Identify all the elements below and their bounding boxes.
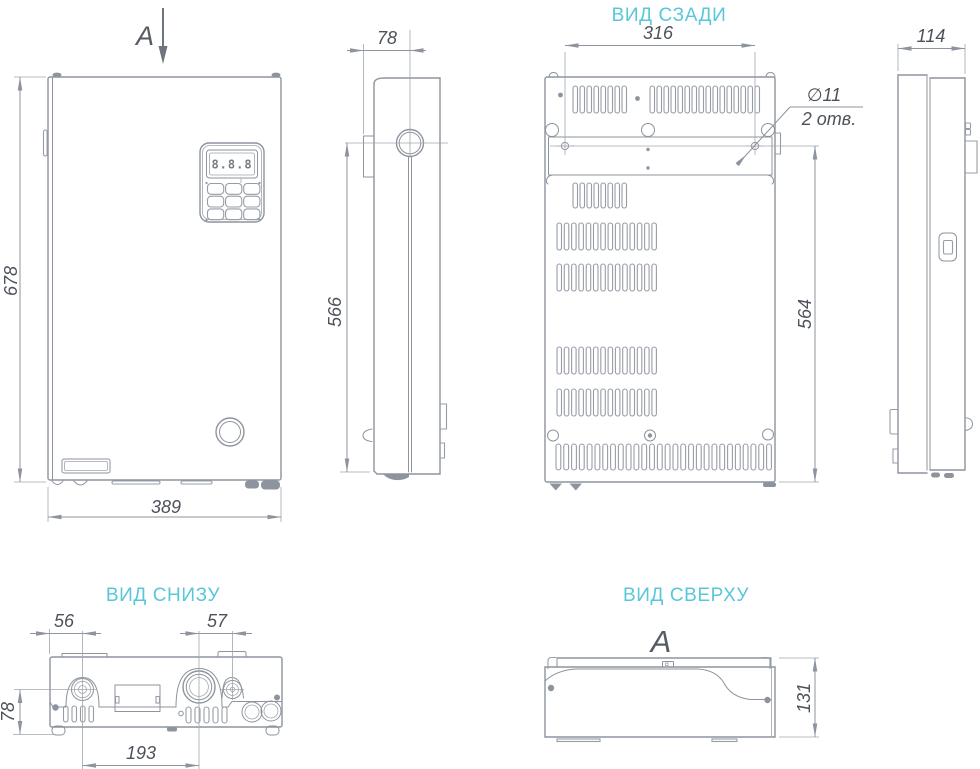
vent-slot (608, 223, 613, 250)
panel-button[interactable] (226, 184, 242, 195)
dim-side-pipe-to-bottom: 566 (325, 143, 370, 472)
vent-slot (657, 444, 662, 470)
vent-slot (587, 444, 592, 470)
vent-slot (564, 264, 569, 291)
button-grid[interactable] (208, 184, 260, 220)
vent-slot (630, 223, 635, 250)
side-clip (890, 410, 898, 435)
vent-slot (594, 183, 599, 208)
vent-slot (603, 444, 608, 470)
vent-slot (564, 347, 569, 374)
vent-slot (72, 706, 77, 722)
dim-front-height: 678 (1, 77, 46, 482)
vent-slot (652, 264, 657, 291)
dim-pipe-depth-label: 78 (0, 702, 18, 722)
bottom-view: ВИД СНИЗУ (0, 585, 282, 769)
top-tab-left (53, 73, 62, 78)
vent-slot (623, 223, 628, 250)
vent-slot (699, 86, 704, 113)
vent-slot (579, 444, 584, 470)
vent-slot (728, 444, 733, 470)
rear-bracket-side (440, 404, 447, 429)
vent-slot (580, 183, 585, 208)
vent-slot (611, 444, 616, 470)
vent-slot (204, 707, 209, 723)
vent-slot (734, 86, 739, 113)
panel-button[interactable] (226, 196, 242, 207)
vent-slot (704, 444, 709, 470)
vent-slot (727, 86, 732, 113)
panel-button[interactable] (208, 184, 224, 195)
bottom-hole (274, 695, 280, 701)
rear-view: ВИД СЗАДИ ∅11 (545, 5, 863, 491)
lcd-display-value: 8.8.8 (211, 158, 252, 172)
vent-slot (564, 389, 569, 416)
panel-button[interactable] (226, 209, 242, 220)
vent-slot (720, 86, 725, 113)
vent-slot (579, 223, 584, 250)
vent-slot (557, 223, 562, 250)
side-clip-right (965, 418, 973, 431)
dim-valve-offset-label: 57 (207, 611, 228, 631)
rear-vents-top-right (650, 86, 760, 113)
vent-slot (652, 389, 657, 416)
vent-slot (720, 444, 725, 470)
dim-side-pipe-offset: 78 (347, 28, 426, 134)
vent-slot (637, 223, 642, 250)
vent-slot (573, 86, 578, 113)
vent-slot (608, 347, 613, 374)
bottom-top-tab (218, 652, 246, 658)
vent-slot (557, 264, 562, 291)
vent-slot (557, 389, 562, 416)
vent-slot (573, 183, 578, 208)
vent-slot (652, 223, 657, 250)
vent-slot (712, 444, 717, 470)
vent-slot (645, 389, 650, 416)
vent-slot (564, 223, 569, 250)
vent-slot (645, 264, 650, 291)
vent-slot (556, 444, 561, 470)
vent-slot (622, 183, 627, 208)
vent-slot (608, 86, 613, 113)
vent-slot (685, 86, 690, 113)
vent-slot (645, 347, 650, 374)
vent-slot (89, 706, 94, 722)
side-foot (931, 473, 940, 478)
vent-slot (594, 389, 599, 416)
vent-slot (630, 347, 635, 374)
vent-slot (572, 444, 577, 470)
vent-slot (572, 347, 577, 374)
door-latch-profile (364, 136, 375, 177)
bottom-view-title: ВИД СНИЗУ (106, 585, 221, 606)
vent-slot (586, 223, 591, 250)
bottom-foot-center (167, 727, 177, 732)
top-view: ВИД СВЕРХУ A 131 (545, 585, 819, 742)
bracket-profile-curve (545, 669, 771, 700)
panel-button[interactable] (244, 196, 260, 207)
vent-slot (692, 86, 697, 113)
vent-slot (615, 86, 620, 113)
section-arrow-label: A (134, 21, 154, 51)
dim-top-depth-label: 131 (794, 683, 814, 713)
vent-slot (767, 444, 772, 470)
rear-panel-outline (545, 77, 775, 482)
vent-slot (626, 444, 631, 470)
vent-slot (601, 264, 606, 291)
door-hinge (44, 130, 48, 156)
vent-slot (735, 444, 740, 470)
vent-slot (713, 86, 718, 113)
vent-slot (579, 347, 584, 374)
vent-slot (615, 347, 620, 374)
vent-slot (572, 389, 577, 416)
section-arrow: A (134, 8, 168, 64)
screw (635, 96, 640, 101)
dim-front-width-label: 389 (151, 497, 181, 517)
dim-top-depth: 131 (779, 658, 819, 737)
vent-slot (186, 707, 191, 723)
vent-slot (759, 444, 764, 470)
vent-slot (678, 86, 683, 113)
vent-slot (671, 86, 676, 113)
keyhole-left (546, 124, 559, 137)
vent-slot (637, 347, 642, 374)
vent-slot (615, 264, 620, 291)
front-feet (52, 481, 280, 490)
bracket-tab (966, 123, 971, 129)
vent-slot (657, 86, 662, 113)
vent-slot (608, 183, 613, 208)
vent-slot (618, 444, 623, 470)
vent-slot (630, 264, 635, 291)
dim-front-width: 389 (48, 487, 281, 522)
panel-button[interactable] (208, 196, 224, 207)
vent-slot (594, 223, 599, 250)
top-view-section-label: A (649, 624, 672, 659)
vent-slot (64, 706, 69, 722)
bottom-clip (363, 429, 372, 442)
panel-button[interactable] (244, 184, 260, 195)
dim-side-pipe-to-bottom-label: 566 (325, 296, 345, 327)
dim-front-height-label: 678 (1, 266, 21, 296)
vent-slot (580, 86, 585, 113)
bottom-vents-right (186, 707, 227, 723)
vent-slot (637, 389, 642, 416)
top-view-title: ВИД СВЕРХУ (623, 585, 749, 606)
side-switch[interactable] (939, 233, 957, 261)
vent-slot (579, 264, 584, 291)
dim-depth-label: 114 (917, 26, 946, 46)
vent-slot (751, 444, 756, 470)
dim-mount-holes: 316 (565, 23, 755, 137)
panel-button[interactable] (208, 209, 224, 220)
vent-slot (696, 444, 701, 470)
hole-diameter-label: ∅11 (807, 85, 841, 105)
dim-bracket-to-bottom: 564 (770, 146, 819, 482)
dim-side-pipe-offset-label: 78 (377, 28, 397, 48)
dim-mount-holes-label: 316 (643, 23, 674, 43)
vent-slot (608, 264, 613, 291)
rear-hole-right (763, 429, 774, 440)
side-foot (383, 474, 409, 480)
vent-slot (586, 347, 591, 374)
dim-bracket-to-bottom-label: 564 (795, 299, 815, 329)
bottom-hole (52, 704, 58, 710)
vent-slot (634, 444, 639, 470)
vent-slot (615, 183, 620, 208)
rear-side-tab (775, 133, 781, 154)
vent-slot (681, 444, 686, 470)
rear-vents-top-left (573, 86, 627, 113)
bottom-cutout (115, 685, 160, 712)
vent-slot (557, 347, 562, 374)
bottom-vents-left (64, 706, 94, 722)
vent-slot (564, 444, 569, 470)
vent-slot (650, 86, 655, 113)
vent-slot (579, 389, 584, 416)
vent-slot (601, 183, 606, 208)
dim-valve-offset: 57 (180, 611, 252, 634)
dim-left-pipe-offset-label: 56 (54, 611, 75, 631)
hole-count-label: 2 отв. (801, 109, 856, 129)
right-side-view: 114 (890, 26, 977, 478)
vent-slot (650, 444, 655, 470)
dim-pipe-spacing-label: 193 (126, 743, 156, 763)
vent-slot (587, 183, 592, 208)
vent-slot (706, 86, 711, 113)
vent-slot (673, 444, 678, 470)
vent-slot (741, 86, 746, 113)
vent-slot (586, 264, 591, 291)
vent-slot (642, 444, 647, 470)
vent-slot (594, 347, 599, 374)
vent-slot (615, 223, 620, 250)
vent-slot (755, 86, 760, 113)
vent-slot (630, 389, 635, 416)
vent-slot (213, 707, 218, 723)
wall-bracket-side (966, 141, 978, 173)
vent-slot (587, 86, 592, 113)
vent-slot (595, 444, 600, 470)
screw (558, 93, 563, 98)
front-cabinet-outline (48, 77, 281, 480)
vent-slot (652, 347, 657, 374)
technical-drawing-page: A 8.8.8 (0, 0, 980, 769)
screw (548, 685, 554, 691)
vent-slot (689, 444, 694, 470)
dim-left-pipe-offset: 56 (30, 611, 101, 654)
front-knob (216, 418, 244, 446)
vent-slot (608, 389, 613, 416)
vent-slot (748, 86, 753, 113)
vent-slot (586, 389, 591, 416)
technical-drawing-canvas: A 8.8.8 (0, 0, 980, 769)
screw (764, 697, 770, 703)
rear-hole-left (548, 430, 559, 441)
vent-slot (623, 264, 628, 291)
vent-slot (622, 86, 627, 113)
top-tab-right (272, 73, 281, 78)
vent-slot (664, 86, 669, 113)
front-view: A 8.8.8 (1, 8, 281, 522)
dim-depth: 114 (898, 26, 965, 74)
vent-slot (601, 347, 606, 374)
vent-slot (601, 223, 606, 250)
keyhole-center (642, 124, 655, 137)
vent-slot (665, 444, 670, 470)
vent-slot (743, 444, 748, 470)
vent-slot (601, 86, 606, 113)
vent-slot (601, 389, 606, 416)
vent-slot (623, 347, 628, 374)
rear-vents-body (556, 183, 771, 470)
vent-slot (615, 389, 620, 416)
vent-slot (594, 264, 599, 291)
vent-slot (637, 264, 642, 291)
vent-slot (572, 264, 577, 291)
vent-slot (222, 707, 227, 723)
left-side-view: 78 566 (325, 28, 448, 480)
panel-button[interactable] (244, 209, 260, 220)
vent-slot (645, 223, 650, 250)
dim-pipe-spacing: 193 (83, 743, 200, 766)
rear-feet (550, 483, 777, 491)
vent-slot (623, 389, 628, 416)
control-panel: 8.8.8 (200, 143, 264, 222)
section-arrow-head (159, 46, 168, 64)
vent-slot (572, 223, 577, 250)
vent-slot (594, 86, 599, 113)
